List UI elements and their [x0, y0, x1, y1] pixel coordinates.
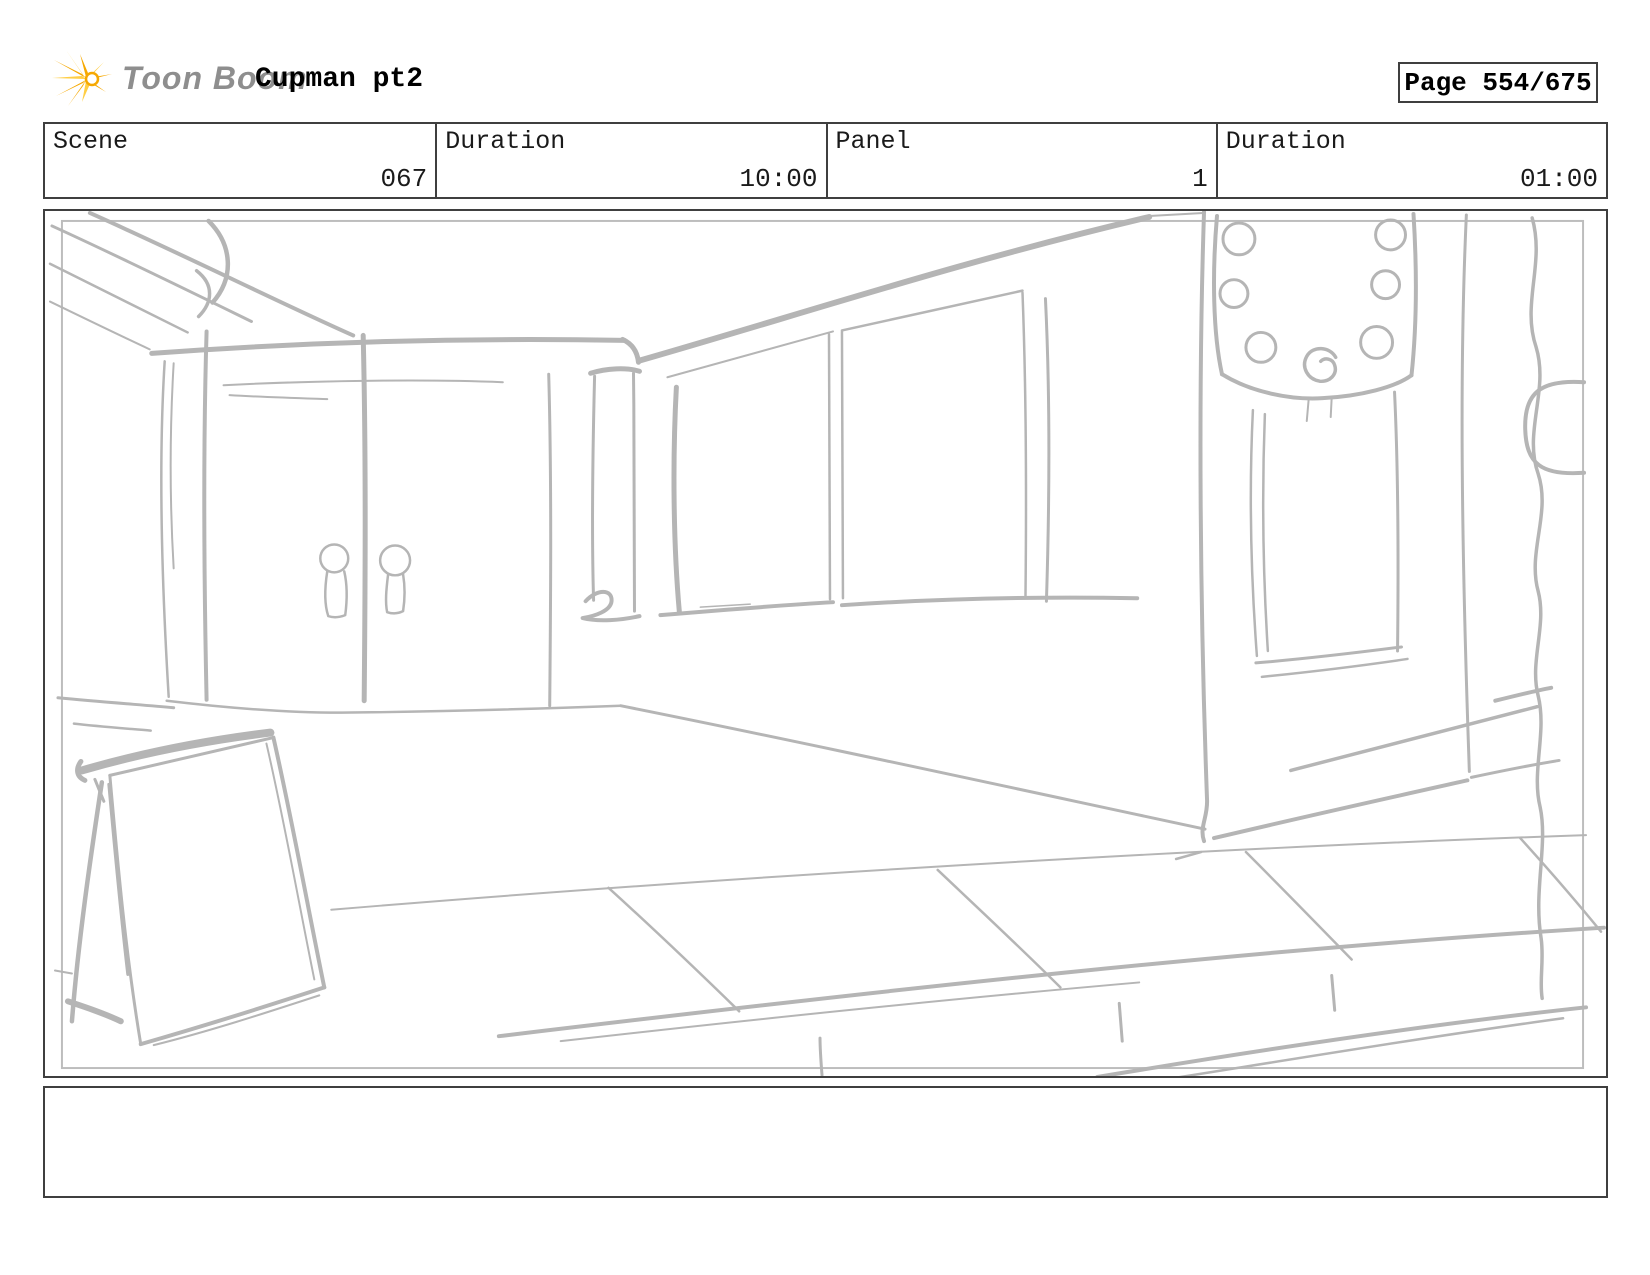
marquee-bulb: [1246, 332, 1276, 362]
marquee-bulb: [1372, 271, 1400, 299]
panel-duration-label: Duration: [1226, 128, 1598, 156]
marquee-bulb: [1223, 223, 1255, 255]
sidewalk: [331, 835, 1604, 1076]
scene-value: 067: [380, 164, 427, 194]
panel-number-label: Panel: [836, 128, 1208, 156]
scene-duration-cell: Duration 10:00: [435, 124, 825, 197]
drawing-inner-frame: [62, 221, 1583, 1068]
toonboom-starburst-icon: [52, 48, 116, 108]
left-wall-lines: [55, 331, 207, 973]
door-handle-left: [320, 544, 348, 572]
marquee-lights-sign: [1214, 214, 1416, 421]
storyboard-panel: [43, 209, 1608, 1078]
door-handle-right: [380, 545, 410, 575]
marquee-bulb: [1220, 280, 1248, 308]
poster-frame: [1251, 392, 1408, 677]
display-windows: [660, 291, 1137, 615]
scene-duration-label: Duration: [445, 128, 817, 156]
panel-duration-cell: Duration 01:00: [1216, 124, 1606, 197]
scene-label: Scene: [53, 128, 427, 156]
marquee-bulb: [1361, 326, 1393, 358]
ceiling-lines: [50, 213, 353, 349]
marquee-swirl-bulb: [1305, 349, 1336, 382]
storyboard-panel-drawing: [45, 211, 1606, 1076]
marquee-bulb: [1376, 220, 1406, 250]
scene-cell: Scene 067: [45, 124, 435, 197]
scene-duration-value: 10:00: [739, 164, 817, 194]
panel-number-value: 1: [1192, 164, 1208, 194]
caption-notes-box: [43, 1086, 1608, 1198]
wavy-trim-line: [1531, 218, 1543, 998]
storefront-doors: [152, 335, 640, 705]
panel-duration-value: 01:00: [1520, 164, 1598, 194]
a-frame-sign: [68, 733, 324, 1046]
page-number-box: Page 554/675: [1398, 62, 1598, 103]
panel-metadata-row: Scene 067 Duration 10:00 Panel 1 Duratio…: [43, 122, 1608, 199]
panel-number-cell: Panel 1: [826, 124, 1216, 197]
project-title: Cupman pt2: [255, 64, 423, 95]
wall-corner-lines: [167, 212, 1207, 859]
